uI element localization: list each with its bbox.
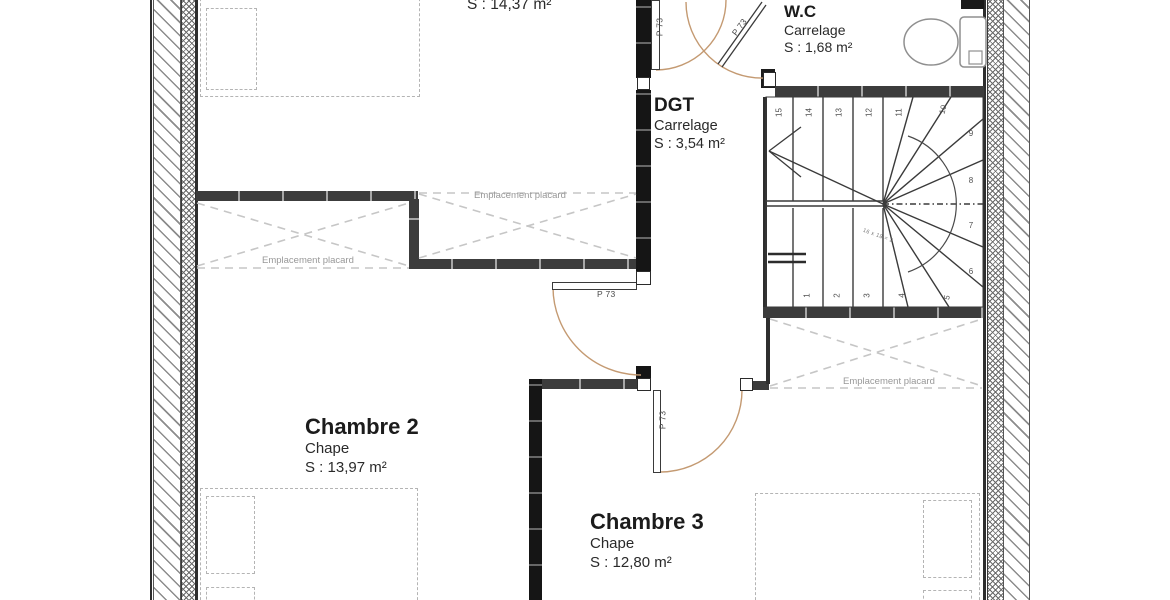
staircase-lines xyxy=(766,97,983,307)
plan-linework xyxy=(0,0,1170,600)
room1-label: S : 14,37 m² xyxy=(467,0,551,15)
room-name: W.C xyxy=(784,2,852,22)
room-name: Chambre 2 xyxy=(305,414,419,439)
door-post xyxy=(637,378,651,391)
closet-label: Emplacement placard xyxy=(262,255,354,266)
toilet-icon xyxy=(904,17,986,67)
room-area: S : 13,97 m² xyxy=(305,458,419,477)
room1-area: S : 14,37 m² xyxy=(467,0,551,15)
stair-number: 2 xyxy=(833,289,842,303)
door-label: P 73 xyxy=(657,411,667,430)
room-area: S : 3,54 m² xyxy=(654,135,725,154)
door-arc-chambre3 xyxy=(661,390,742,472)
stair-number: 15 xyxy=(775,106,784,120)
door-post xyxy=(740,378,753,391)
pillow-chambre2 xyxy=(206,496,255,574)
stair-number: 9 xyxy=(964,129,978,138)
stair-number: 7 xyxy=(964,221,978,230)
stair-number: 12 xyxy=(865,106,874,120)
door-post xyxy=(763,72,776,87)
door-leaf-chambre3 xyxy=(653,390,661,473)
door-label: P 73 xyxy=(597,289,616,299)
room-name: Chambre 3 xyxy=(590,509,704,534)
pillow2-chambre2 xyxy=(206,587,255,600)
stair-number: 4 xyxy=(898,289,907,303)
pillow-chambre3 xyxy=(923,500,972,578)
stair-number: 13 xyxy=(835,106,844,120)
stair-number: 1 xyxy=(803,289,812,303)
pillow2-chambre3 xyxy=(923,590,972,600)
chambre3-label: Chambre 3 Chape S : 12,80 m² xyxy=(590,509,704,573)
closet-label: Emplacement placard xyxy=(474,190,566,201)
floor-plan: S : 14,37 m² W.C Carrelage S : 1,68 m² D… xyxy=(0,0,1170,600)
stair-number: 8 xyxy=(964,176,978,185)
stair-number: 6 xyxy=(964,267,978,276)
room-name: DGT xyxy=(654,95,725,117)
door-post xyxy=(637,77,650,90)
door-arc-chambre2 xyxy=(553,287,641,375)
room-floor: Carrelage xyxy=(654,117,725,136)
room-floor: Chape xyxy=(590,534,704,553)
chambre2-label: Chambre 2 Chape S : 13,97 m² xyxy=(305,414,419,478)
stair-number: 3 xyxy=(863,289,872,303)
wc-label: W.C Carrelage S : 1,68 m² xyxy=(784,2,852,57)
dgt-label: DGT Carrelage S : 3,54 m² xyxy=(654,95,725,154)
door-arc-top xyxy=(656,0,726,70)
room-area: S : 1,68 m² xyxy=(784,39,852,57)
door-post xyxy=(636,271,651,285)
stair-number: 11 xyxy=(895,106,904,120)
stair-number: 14 xyxy=(805,106,814,120)
room-area: S : 12,80 m² xyxy=(590,553,704,572)
closet-label: Emplacement placard xyxy=(843,376,935,387)
closet-right-outline xyxy=(419,193,636,258)
room-floor: Carrelage xyxy=(784,22,852,40)
pillow-room1 xyxy=(206,8,257,90)
room-floor: Chape xyxy=(305,439,419,458)
door-label: P 73 xyxy=(654,18,664,37)
door-leaf-chambre2 xyxy=(552,282,637,290)
